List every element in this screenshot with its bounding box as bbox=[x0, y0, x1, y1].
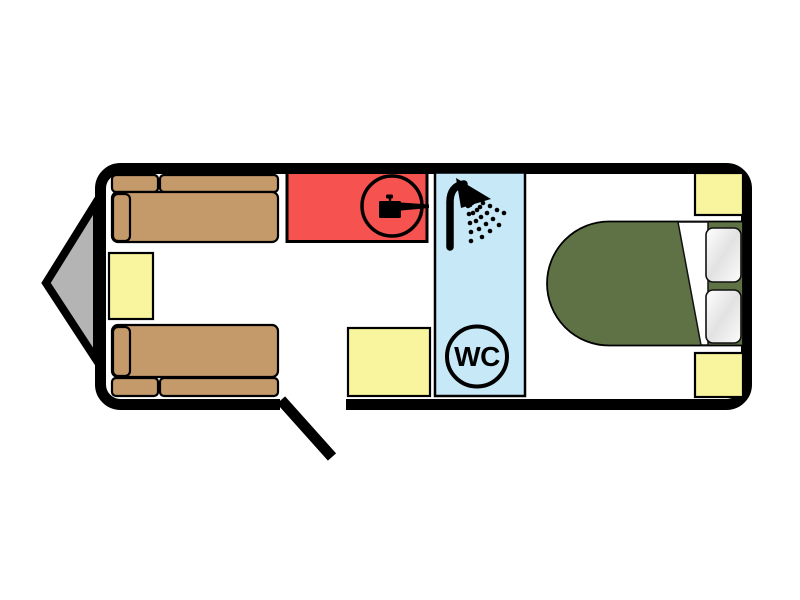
sofa-top-backrest-right bbox=[160, 175, 278, 192]
mid-table bbox=[348, 328, 430, 396]
wc-label: WC bbox=[454, 341, 500, 372]
caravan-floorplan-diagram: WC bbox=[0, 0, 800, 600]
hitch-icon bbox=[46, 201, 97, 361]
pillow-bottom bbox=[706, 290, 741, 343]
cabinet-bottom-right bbox=[695, 353, 743, 397]
cabinet-top-right bbox=[695, 173, 743, 215]
sofa-bottom-armrest bbox=[113, 327, 130, 376]
sofa-top-armrest bbox=[113, 194, 130, 241]
sofa-bottom-seat bbox=[112, 325, 278, 377]
bed-area bbox=[547, 222, 743, 346]
floorplan-canvas: WC bbox=[0, 0, 800, 600]
lounge-table bbox=[109, 253, 153, 319]
sofa-bottom-backrest-left bbox=[112, 378, 158, 396]
sofa-top-backrest-left bbox=[112, 175, 158, 192]
sofa-top-seat bbox=[112, 192, 278, 242]
pillow-top bbox=[706, 228, 741, 282]
kitchen-unit bbox=[287, 173, 429, 242]
bathroom: WC bbox=[435, 173, 525, 397]
sofa-bottom-backrest-right bbox=[160, 378, 278, 396]
